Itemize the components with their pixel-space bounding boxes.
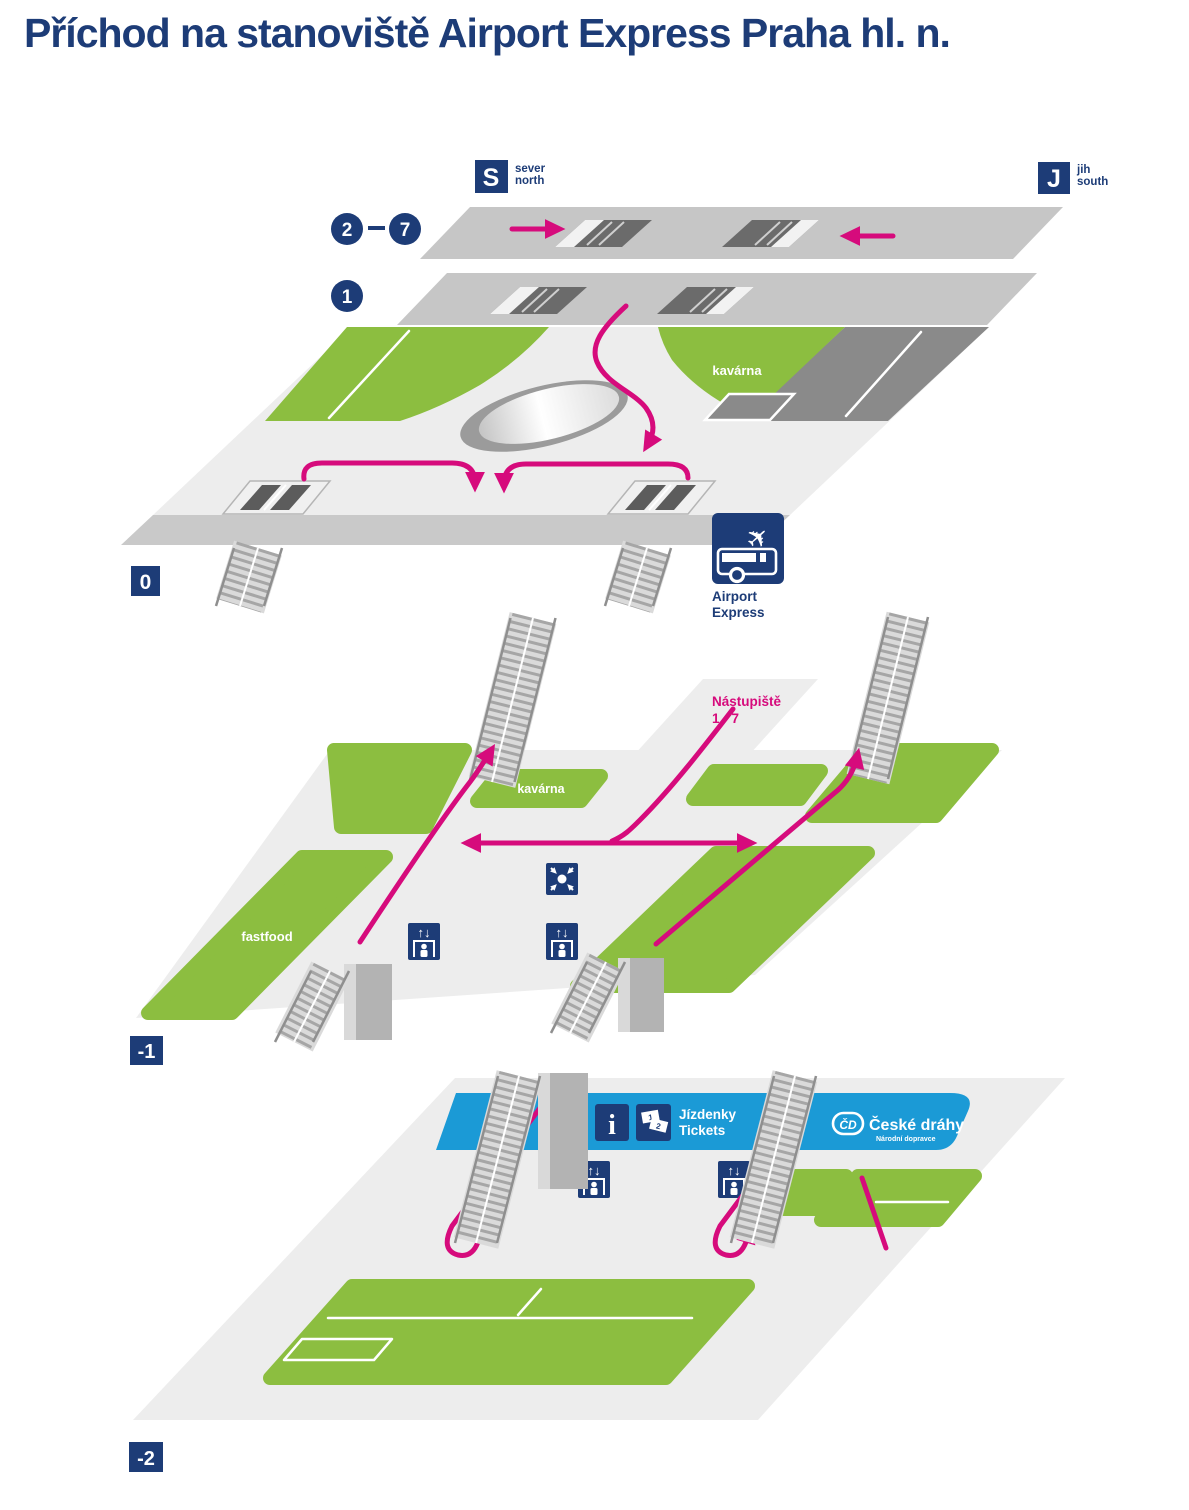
badge-7: 7 <box>400 220 411 241</box>
badge-1: 1 <box>342 287 353 308</box>
column <box>630 958 664 1032</box>
green-area-m1-a <box>693 771 821 799</box>
info-icon: i <box>595 1104 629 1141</box>
tickets-label-cs: Jízdenky <box>679 1107 737 1122</box>
compass-south: J jih south <box>1038 162 1108 194</box>
column-face <box>538 1073 550 1189</box>
platforms-label-1: Nástupiště <box>712 694 782 709</box>
meeting-point-icon <box>546 863 578 895</box>
tickets-label-en: Tickets <box>679 1123 725 1138</box>
level-badge-m2: -2 <box>129 1442 163 1472</box>
cafe-label-m1: kavárna <box>517 782 565 796</box>
level-badge-0: 0 <box>131 566 160 596</box>
stairs-below-0-right <box>605 548 671 606</box>
floor-0-front-edge <box>121 515 790 545</box>
elevator-icon-m1-left: ↑↓ <box>408 923 440 960</box>
badge-0: 0 <box>140 571 152 594</box>
south-letter: J <box>1047 165 1061 193</box>
south-label-cs: jih <box>1076 164 1090 176</box>
cafe-label-0: kavárna <box>712 363 762 378</box>
badge-2: 2 <box>342 220 353 241</box>
level-0: kavárna <box>121 306 989 620</box>
airport-express-label-2: Express <box>712 605 765 620</box>
elevator-arrows: ↑↓ <box>588 1163 601 1178</box>
stairs-below-0-left <box>216 548 282 606</box>
cd-subtitle: Národní dopravce <box>876 1136 936 1143</box>
elevator-icon-m1-right: ↑↓ <box>546 923 578 960</box>
fastfood-label: fastfood <box>241 929 292 944</box>
compass-north: S sever north <box>475 160 546 193</box>
north-label-cs: sever <box>515 163 546 175</box>
badge-m1: -1 <box>138 1041 156 1063</box>
north-letter: S <box>483 164 500 192</box>
column <box>356 964 392 1040</box>
elevator-arrows: ↑↓ <box>556 925 569 940</box>
airport-express-label-1: Airport <box>712 589 758 604</box>
elevator-arrows: ↑↓ <box>418 925 431 940</box>
column <box>550 1073 588 1189</box>
cd-name: České dráhy <box>869 1115 964 1134</box>
level-1: 1 <box>331 273 1037 325</box>
north-label-en: north <box>515 175 544 187</box>
station-diagram: S sever north J jih south <box>0 0 1189 1510</box>
level-minus-2: i 1 2 Jízdenky Tickets ČD České dráhy <box>129 1073 1065 1472</box>
airport-express-icon: ✈ <box>712 513 784 584</box>
level-minus-1: kavárna fastfood Nástupiště 1 - 7 <box>130 617 1002 1065</box>
tickets-icon: 1 2 <box>636 1104 671 1141</box>
platform-area-m2 <box>270 1286 748 1378</box>
level-badge-m1: -1 <box>130 1036 163 1065</box>
south-label-en: south <box>1077 176 1108 188</box>
badge-m2: -2 <box>137 1448 155 1470</box>
cd-monogram: ČD <box>839 1117 857 1132</box>
page: Příchod na stanoviště Airport Express Pr… <box>0 0 1189 1510</box>
level-badge-1: 1 <box>331 280 363 312</box>
green-area-m2-b <box>821 1176 975 1220</box>
level-badge-2-7: 2 7 <box>331 213 421 245</box>
level-2-7: 2 7 <box>331 207 1063 259</box>
elevator-arrows: ↑↓ <box>728 1163 741 1178</box>
info-glyph: i <box>608 1110 616 1141</box>
